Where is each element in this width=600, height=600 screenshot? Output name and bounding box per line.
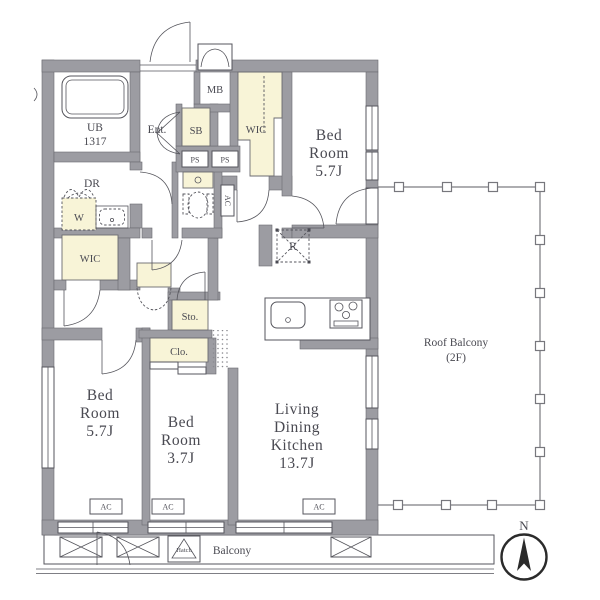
floor-plan-drawing: UB 1317 Ent. MB SB WIC Bed Room 5.7J DR …: [0, 0, 600, 600]
compass-icon: [502, 535, 547, 580]
outdoor-unit-icon: [331, 537, 371, 557]
sliding-window: [58, 522, 128, 533]
room-label-wic-upper: WIC: [246, 125, 266, 136]
hall-closet-folding-doors: [137, 288, 171, 310]
room-label-bedroom-s-size: 3.7J: [167, 450, 194, 467]
roof-balcony-door-opening: [366, 188, 378, 224]
window: [42, 367, 54, 468]
room-label-bedroom-ne-size: 5.7J: [315, 163, 342, 180]
label-north: N: [519, 518, 529, 533]
kitchen-counter: [265, 298, 370, 340]
wall-segment: [118, 238, 130, 290]
wall-segment: [130, 204, 142, 228]
wall-segment: [182, 228, 222, 238]
room-label-bedroom-ne: Room: [309, 145, 349, 162]
window: [366, 106, 378, 150]
room-label-ldk: Dining: [274, 419, 320, 436]
room-label-bedroom-s: Room: [161, 432, 201, 449]
label-hatch: Hatch: [176, 547, 192, 554]
wall-segment: [259, 225, 272, 266]
wall-segment: [130, 72, 140, 162]
balcony-outline: [36, 535, 494, 574]
wall-segment: [194, 72, 200, 104]
label-roof-balcony: Roof Balcony: [424, 337, 488, 349]
bedroom-sw-door-arc: [102, 340, 136, 374]
label-ac: AC: [162, 503, 173, 512]
label-pipe-space: PS: [221, 156, 230, 165]
sliding-closet-doors: [150, 362, 206, 374]
wall-segment: [42, 60, 140, 72]
label-ac: AC: [100, 503, 111, 512]
room-label-shoe-box: SB: [190, 126, 203, 137]
vanity-sink-icon: [96, 206, 128, 228]
toilet-tank: [183, 172, 213, 188]
room-label-bedroom-sw: Room: [80, 405, 120, 422]
bedroom-ne-door-arc: [292, 196, 324, 228]
window: [366, 152, 378, 180]
label-washer: W: [74, 213, 84, 224]
wall-segment: [208, 238, 218, 300]
room-label-entrance: Ent.: [148, 124, 167, 136]
wall-segment: [292, 225, 378, 238]
wic-west-door-arc: [64, 290, 100, 326]
hall-closet-area: [137, 263, 171, 287]
label-closet: Clo.: [170, 347, 188, 358]
room-label-bedroom-s: Bed: [168, 414, 194, 431]
dressing-room-door-arc: [140, 172, 172, 204]
room-label-dressing-room: DR: [84, 178, 100, 190]
window: [366, 419, 378, 449]
room-label-meter-box: MB: [207, 85, 223, 96]
wall-segment: [142, 328, 150, 525]
floor-plan-page: UB 1317 Ent. MB SB WIC Bed Room 5.7J DR …: [0, 0, 600, 600]
wall-segment: [54, 280, 66, 290]
label-refrigerator: R: [289, 241, 297, 253]
window: [366, 356, 378, 408]
outdoor-unit-icon: [60, 537, 102, 557]
wall-segment: [139, 330, 212, 338]
wall-segment: [230, 72, 238, 146]
room-label-ub-size: 1317: [84, 136, 107, 148]
room-label-ldk-size: 13.7J: [279, 455, 315, 472]
entrance-door-arc: [150, 22, 190, 62]
label-ac: AC: [313, 503, 324, 512]
sliding-window: [236, 522, 332, 533]
sliding-window: [148, 522, 224, 533]
wic-upper-door-arc: [237, 190, 269, 222]
wall-segment: [54, 152, 140, 162]
shaft-dotted-area: [212, 330, 230, 368]
wall-segment: [42, 328, 102, 340]
label-balcony: Balcony: [213, 545, 252, 557]
wall-segment: [176, 104, 182, 146]
room-label-ldk: Kitchen: [271, 437, 324, 454]
wall-segment: [142, 228, 152, 238]
wall-segment: [130, 162, 142, 170]
room-label-ub: UB: [87, 122, 103, 134]
label-pipe-space: PS: [191, 156, 200, 165]
cut-mark: [34, 88, 37, 101]
room-label-bedroom-ne: Bed: [316, 127, 342, 144]
label-roof-balcony-floor: (2F): [446, 352, 466, 364]
washer-flower-icon: [64, 190, 94, 199]
label-ac: AC: [223, 195, 232, 206]
wic-upper-area: [238, 72, 282, 176]
wall-segment: [172, 162, 178, 238]
bathtub-icon: [62, 76, 128, 118]
room-label-bedroom-sw: Bed: [87, 387, 113, 404]
room-label-ldk: Living: [275, 401, 319, 418]
wall-segment: [282, 72, 292, 196]
label-storage: Sto.: [182, 312, 199, 323]
meter-box-icon: [198, 44, 232, 70]
room-label-wic-west: WIC: [80, 254, 100, 265]
room-label-bedroom-sw-size: 5.7J: [86, 423, 113, 440]
wall-segment: [228, 368, 238, 525]
